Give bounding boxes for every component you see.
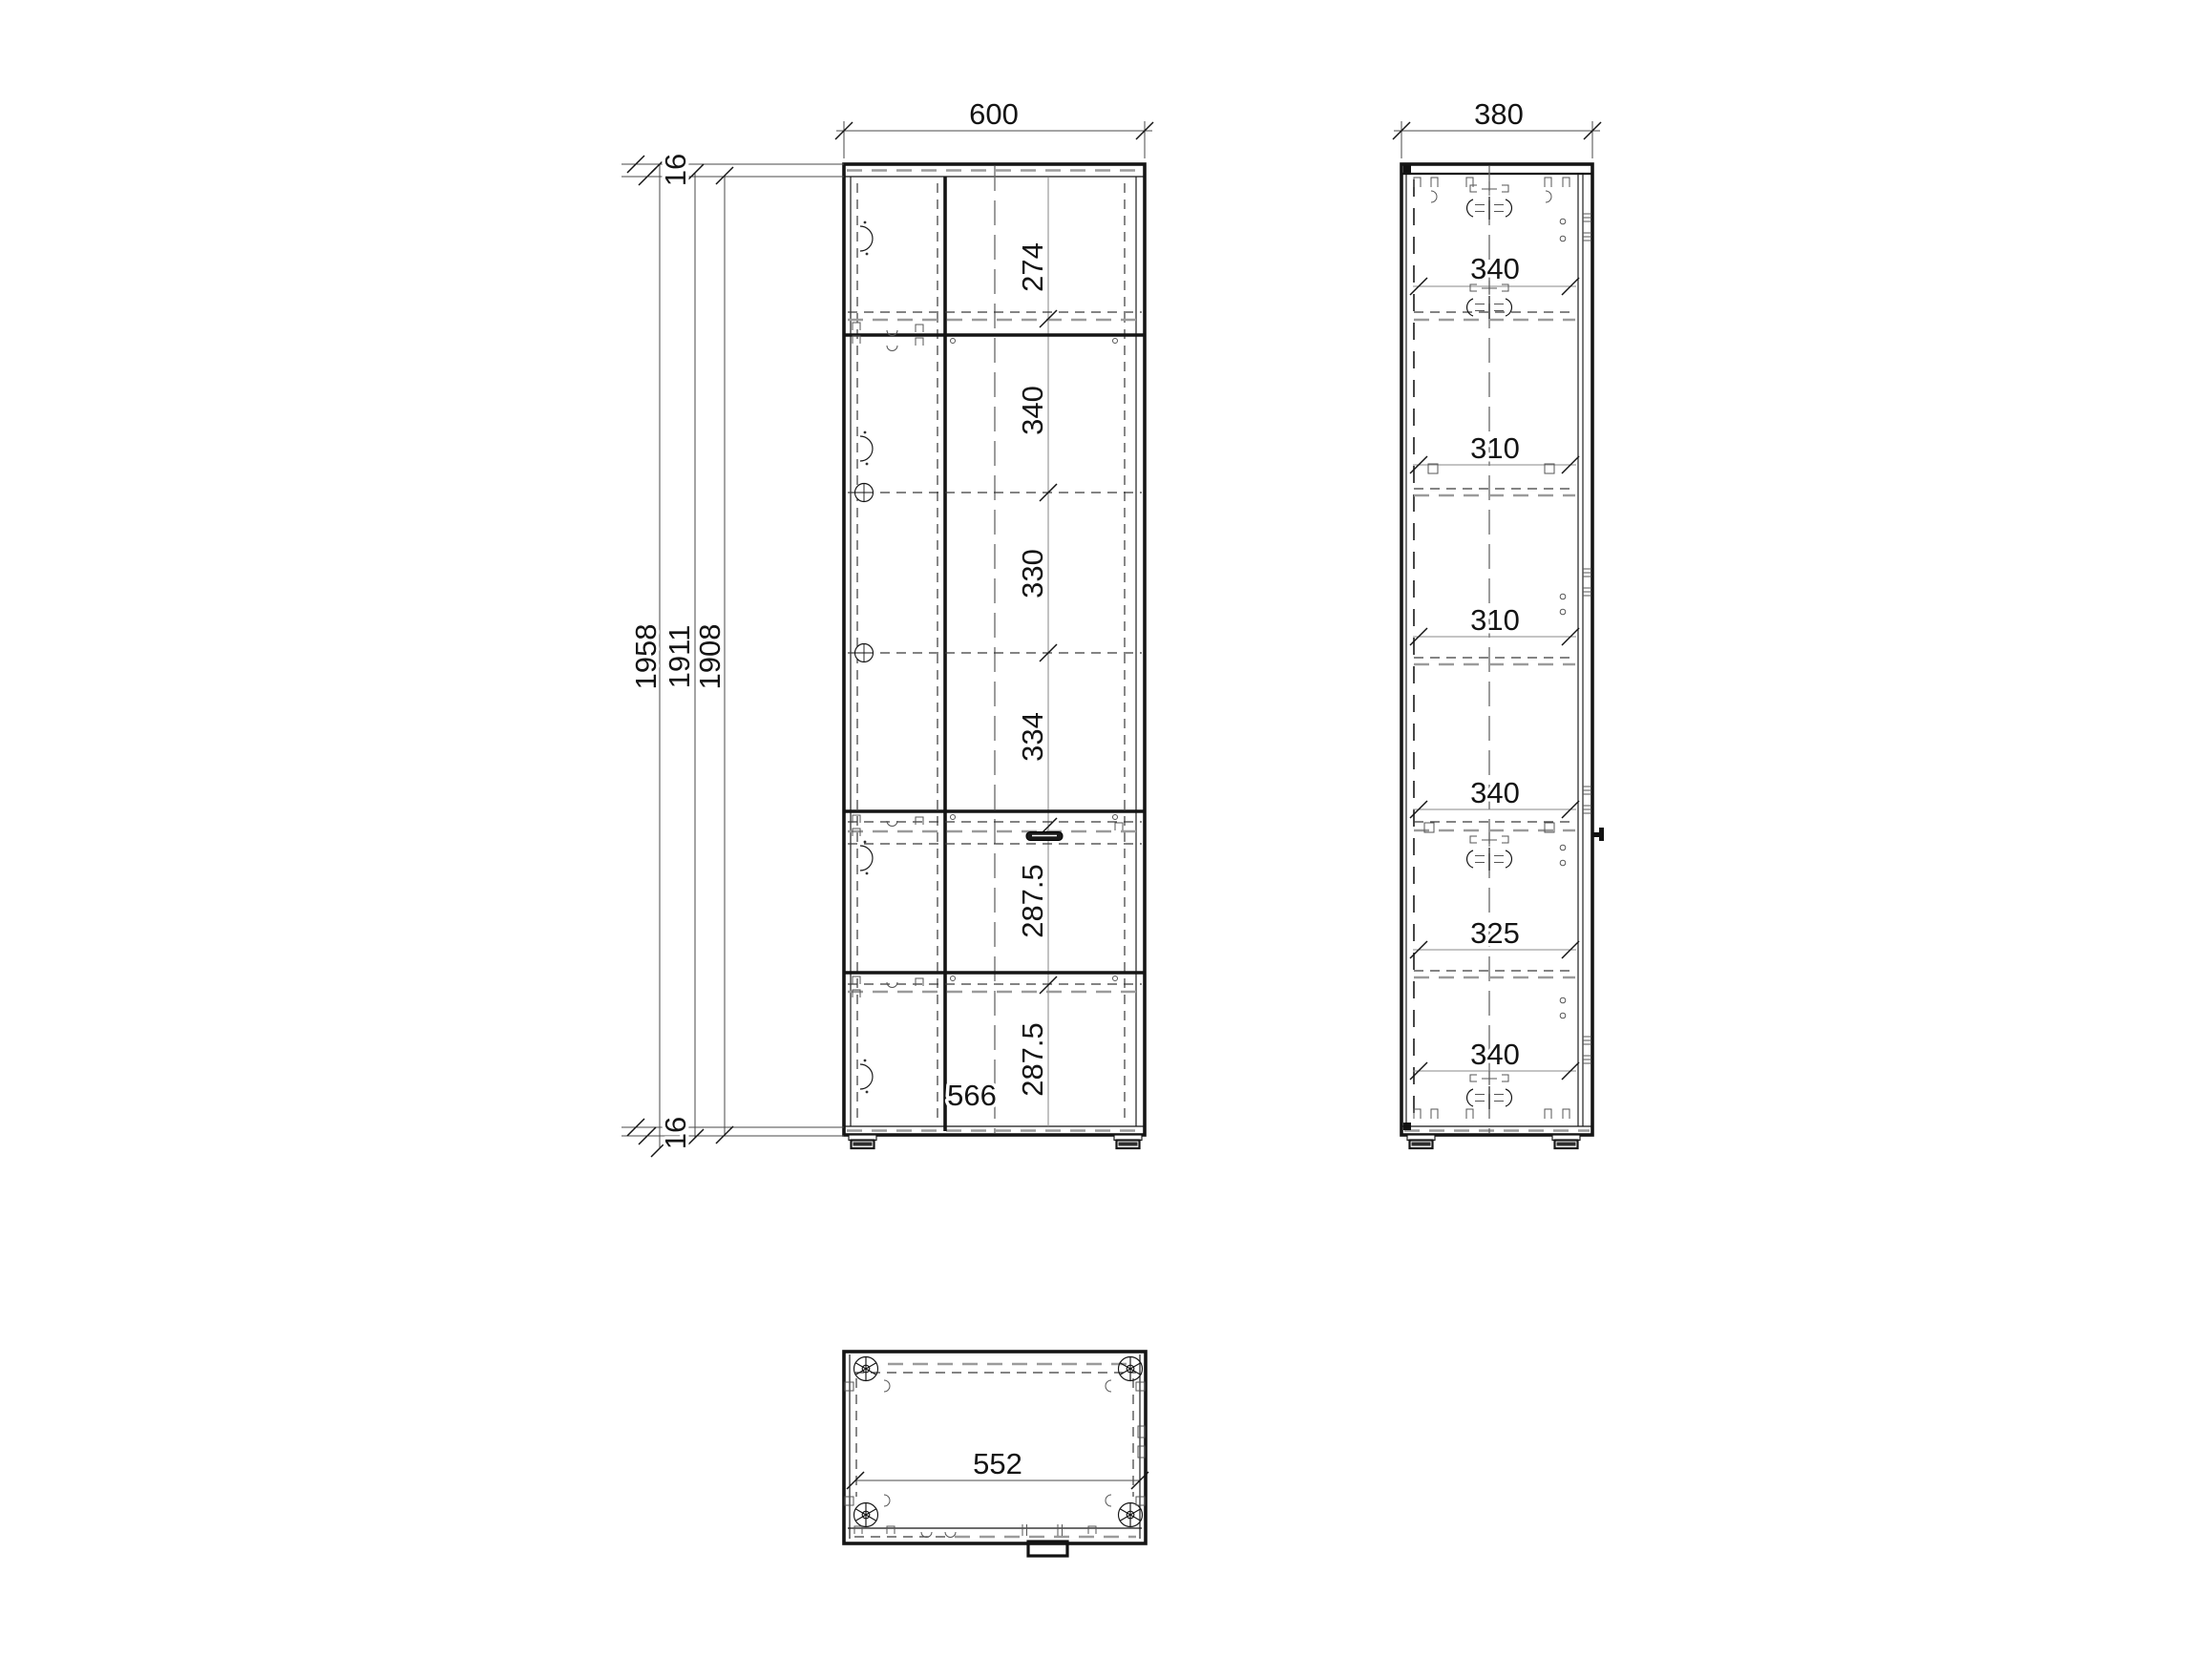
- adjustable-foot-symbol: [849, 1135, 876, 1148]
- side-section-dim-label: 340: [1470, 776, 1520, 809]
- technical-drawing-page: 600 380 16 16 1958 1911 1908 274 340 330…: [0, 0, 2212, 1658]
- front-section-dim-label: 340: [1016, 386, 1049, 435]
- front-section-dim-label: 287.5: [1016, 864, 1049, 938]
- front-section-dim-label: 287.5: [1016, 1022, 1049, 1097]
- top-width-dim-label: 552: [973, 1447, 1022, 1480]
- adjustable-foot-symbol: [1114, 1135, 1142, 1148]
- side-cabinet-outline: [1401, 164, 1592, 1135]
- side-section-dim-label: 310: [1470, 431, 1520, 465]
- front-carcass-height-dim-label: 1908: [693, 624, 727, 690]
- door-handle-side: [1592, 828, 1604, 841]
- front-width-dim-label: 600: [969, 97, 1019, 131]
- adjustable-foot-symbol: [1552, 1135, 1580, 1148]
- side-view: [1401, 164, 1604, 1148]
- drawer-handle-front: [1026, 832, 1063, 841]
- side-section-dim-label: 325: [1470, 916, 1520, 950]
- side-section-dim-label: 340: [1470, 252, 1520, 285]
- front-section-dim-label: 330: [1016, 549, 1049, 598]
- front-section-dim-label: 274: [1016, 242, 1049, 292]
- front-interior-width-dim-label: 566: [947, 1079, 997, 1112]
- front-section-dim-label: 334: [1016, 712, 1049, 762]
- front-view: [844, 164, 1145, 1148]
- front-door-height-dim-label: 1911: [663, 625, 696, 689]
- side-depth-dim-label: 380: [1474, 97, 1524, 131]
- adjustable-foot-symbol: [1407, 1135, 1435, 1148]
- front-top-panel-dim-label: 16: [659, 154, 692, 186]
- front-bottom-panel-dim-label: 16: [659, 1117, 692, 1149]
- side-section-dim-label: 340: [1470, 1038, 1520, 1071]
- side-section-dim-label: 310: [1470, 603, 1520, 637]
- front-overall-height-dim-label: 1958: [629, 624, 663, 690]
- drawing-canvas: 600 380 16 16 1958 1911 1908 274 340 330…: [0, 0, 2212, 1658]
